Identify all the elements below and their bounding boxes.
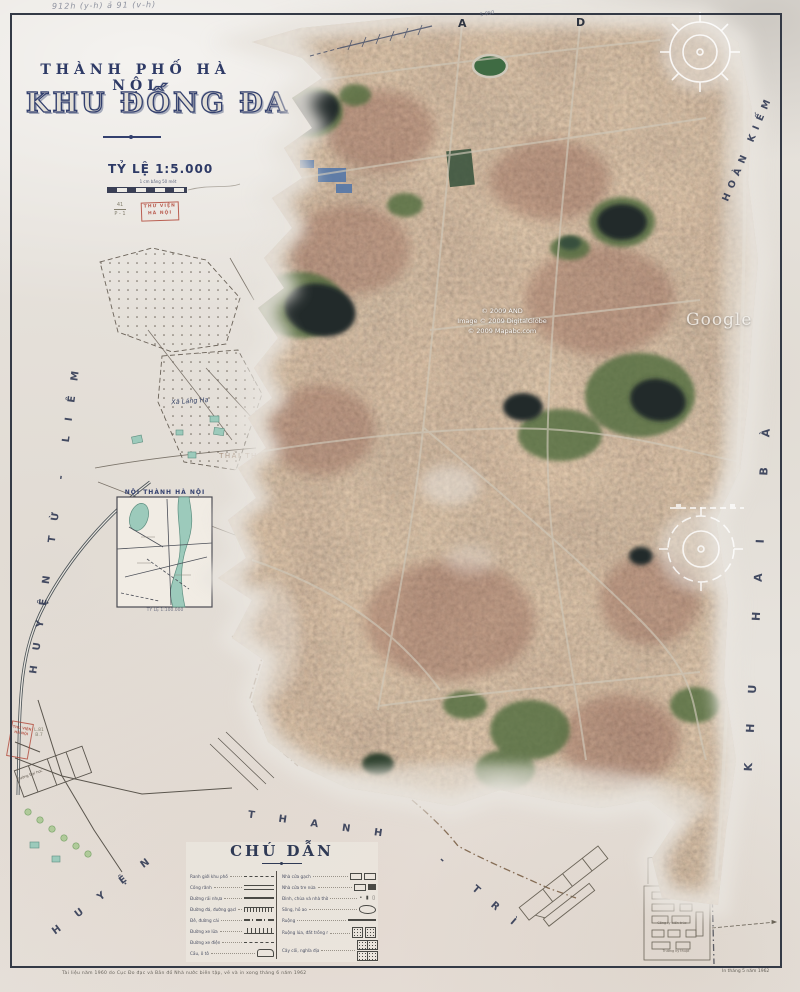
legend-column-divider bbox=[276, 871, 277, 959]
legend-row: Ruộng lúa, đất trồng màu bbox=[282, 926, 376, 939]
canal-symbol bbox=[244, 885, 274, 890]
field-symbol bbox=[348, 919, 376, 921]
leader-dots bbox=[297, 919, 346, 921]
legend-label: Cây cối, nghĩa địa bbox=[282, 948, 319, 953]
copyright-line-1: © 2009 AND bbox=[417, 307, 587, 315]
google-watermark: Google bbox=[686, 310, 752, 330]
copyright-line-3: © 2009 Mapabc.com bbox=[417, 327, 587, 335]
lake-symbol bbox=[359, 905, 376, 914]
legend-row: Nhà cửa tre nứa bbox=[282, 882, 376, 892]
legend-row: Nhà cửa gạch bbox=[282, 871, 376, 881]
paved-road-symbol bbox=[244, 897, 274, 899]
boundary-symbol bbox=[244, 876, 274, 877]
legend-label: Sông, hồ ao bbox=[282, 907, 307, 912]
legend-label: Cầu, ô tô bbox=[190, 951, 209, 956]
leader-dots bbox=[230, 875, 242, 877]
legend-label: Ranh giới khu phố bbox=[190, 874, 228, 879]
grid-letter-a: A bbox=[458, 17, 467, 30]
railway-symbol bbox=[244, 928, 274, 934]
legend-left-column: Ranh giới khu phố Cống rãnh Đường rải nh… bbox=[190, 871, 274, 958]
legend-row: Cây cối, nghĩa địa bbox=[282, 940, 376, 960]
legend-label: Đình, chùa và nhà thờ bbox=[282, 896, 328, 901]
leader-dots bbox=[221, 919, 242, 921]
legend-label: Đê, đường cái bbox=[190, 918, 219, 923]
leader-dots bbox=[222, 941, 242, 943]
legend-row: Đường xe lửa bbox=[190, 926, 274, 936]
leader-dots bbox=[309, 908, 357, 910]
legend-label: Nhà cửa gạch bbox=[282, 874, 311, 879]
legend: CHÚ DẪN Ranh giới khu phố Cống rãnh Đườn… bbox=[186, 842, 378, 962]
legend-label: Đường xe lửa bbox=[190, 929, 218, 934]
trees-cemetery-symbol bbox=[357, 940, 376, 961]
legend-label: Nhà cửa tre nứa bbox=[282, 885, 316, 890]
legend-label: Đường đá, đường gạch bbox=[190, 907, 236, 912]
legend-row: Đường xe điện bbox=[190, 937, 274, 947]
legend-label: Đường rải nhựa bbox=[190, 896, 222, 901]
grid-letter-d: D bbox=[576, 16, 585, 29]
copyright-line-2: Image © 2009 DigitalGlobe bbox=[417, 317, 587, 325]
legend-row: Sông, hồ ao bbox=[282, 904, 376, 914]
legend-label: Cống rãnh bbox=[190, 885, 212, 890]
legend-label: Ruộng lúa, đất trồng màu bbox=[282, 930, 328, 935]
leader-dots bbox=[220, 930, 242, 932]
leader-dots bbox=[238, 908, 242, 910]
leader-dots bbox=[318, 886, 352, 888]
temple-symbol: • ▮ ▯ bbox=[359, 895, 376, 901]
brick-house-symbol bbox=[350, 873, 376, 880]
bamboo-house-symbol bbox=[354, 884, 376, 891]
legend-right-column: Nhà cửa gạch Nhà cửa tre nứa Đình, chùa … bbox=[282, 871, 376, 960]
legend-row: Ruộng bbox=[282, 915, 376, 925]
tramway-symbol bbox=[244, 942, 274, 943]
legend-row: Ranh giới khu phố bbox=[190, 871, 274, 881]
bridge-car-symbol bbox=[257, 949, 274, 957]
paddy-symbol bbox=[352, 927, 376, 938]
legend-label: Đường xe điện bbox=[190, 940, 220, 945]
legend-row: Cống rãnh bbox=[190, 882, 274, 892]
legend-row: Đường rải nhựa bbox=[190, 893, 274, 903]
legend-title: CHÚ DẪN bbox=[186, 842, 378, 860]
stone-road-symbol bbox=[244, 907, 274, 912]
legend-row: Đường đá, đường gạch bbox=[190, 904, 274, 914]
legend-label: Ruộng bbox=[282, 918, 295, 923]
legend-ornament bbox=[262, 863, 302, 864]
leader-dots bbox=[330, 897, 357, 899]
legend-row: Cầu, ô tô bbox=[190, 948, 274, 958]
leader-dots bbox=[224, 897, 242, 899]
leader-dots bbox=[214, 886, 242, 888]
legend-row: Đê, đường cái bbox=[190, 915, 274, 925]
leader-dots bbox=[211, 952, 255, 954]
leader-dots bbox=[330, 932, 350, 934]
leader-dots bbox=[321, 949, 355, 951]
satellite-overlay-layer bbox=[0, 0, 800, 992]
map-sheet: Trường Đại học bbox=[0, 0, 800, 992]
leader-dots bbox=[313, 875, 348, 877]
dike-road-symbol bbox=[244, 919, 274, 921]
legend-row: Đình, chùa và nhà thờ• ▮ ▯ bbox=[282, 893, 376, 903]
